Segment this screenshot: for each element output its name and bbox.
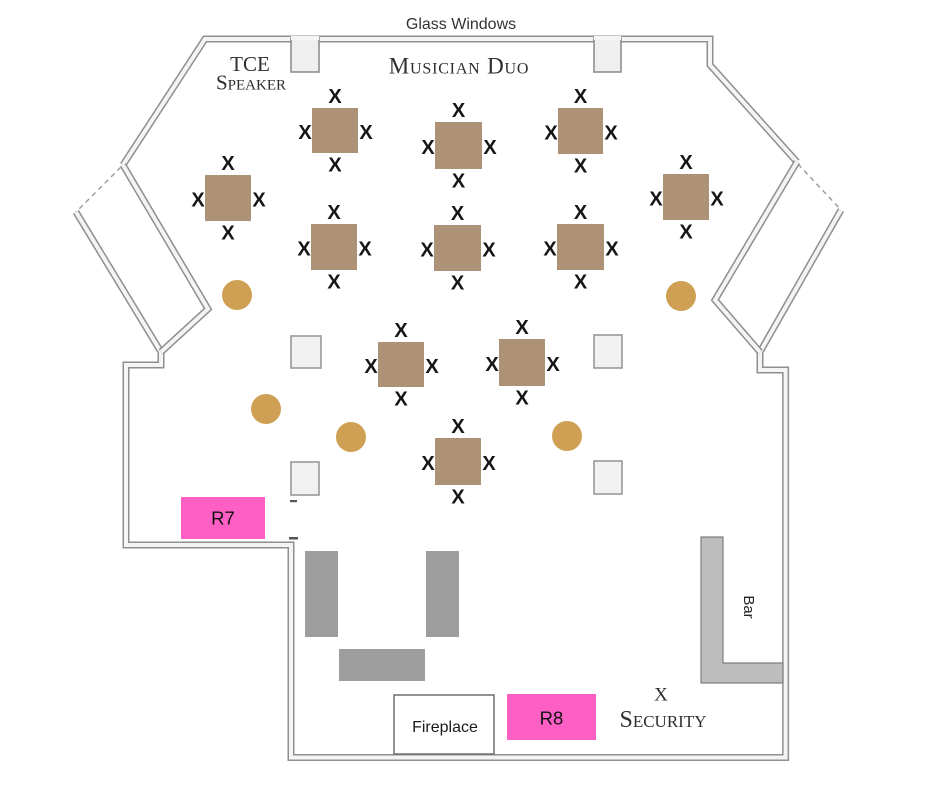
svg-text:X: X <box>451 486 465 508</box>
svg-text:X: X <box>605 238 619 260</box>
svg-text:X: X <box>421 137 435 159</box>
svg-text:X: X <box>451 272 465 294</box>
svg-text:X: X <box>327 271 341 293</box>
svg-text:X: X <box>221 222 235 244</box>
svg-text:Speaker: Speaker <box>216 70 286 94</box>
svg-text:X: X <box>452 100 466 122</box>
svg-text:X: X <box>649 188 663 210</box>
svg-text:X: X <box>394 320 408 342</box>
svg-text:X: X <box>679 221 693 243</box>
svg-text:R7: R7 <box>211 508 235 529</box>
svg-text:X: X <box>543 238 557 260</box>
svg-text:Glass Windows: Glass Windows <box>406 16 516 33</box>
svg-text:X: X <box>359 122 373 144</box>
svg-text:X: X <box>546 354 560 376</box>
svg-text:X: X <box>328 86 342 108</box>
svg-text:X: X <box>421 453 435 475</box>
svg-text:X: X <box>221 153 235 175</box>
svg-text:X: X <box>451 416 465 438</box>
svg-text:X: X <box>679 152 693 174</box>
svg-text:X: X <box>452 170 466 192</box>
svg-text:X: X <box>451 203 465 225</box>
svg-text:X: X <box>425 356 439 378</box>
svg-text:X: X <box>358 238 372 260</box>
svg-text:X: X <box>482 239 496 261</box>
svg-text:X: X <box>515 387 529 409</box>
svg-text:X: X <box>574 202 588 224</box>
svg-text:X: X <box>298 122 312 144</box>
svg-text:X: X <box>710 188 724 210</box>
svg-text:X: X <box>544 122 558 144</box>
svg-text:Musician Duo: Musician Duo <box>389 54 529 79</box>
svg-text:X: X <box>574 271 588 293</box>
svg-text:X: X <box>420 239 434 261</box>
svg-text:X: X <box>327 202 341 224</box>
svg-text:X: X <box>515 317 529 339</box>
svg-text:Fireplace: Fireplace <box>412 719 478 736</box>
svg-text:Security: Security <box>619 707 706 733</box>
svg-text:X: X <box>483 137 497 159</box>
svg-text:X: X <box>328 154 342 176</box>
svg-text:X: X <box>574 155 588 177</box>
svg-text:X: X <box>394 388 408 410</box>
svg-text:X: X <box>574 86 588 108</box>
svg-text:X: X <box>191 189 205 211</box>
svg-text:X: X <box>482 453 496 475</box>
svg-text:X: X <box>604 122 618 144</box>
svg-text:R8: R8 <box>540 708 564 729</box>
svg-text:X: X <box>485 354 499 376</box>
svg-text:Bar: Bar <box>740 595 757 618</box>
svg-text:X: X <box>252 189 266 211</box>
svg-text:X: X <box>297 238 311 260</box>
svg-text:X: X <box>654 685 668 706</box>
svg-text:X: X <box>364 356 378 378</box>
